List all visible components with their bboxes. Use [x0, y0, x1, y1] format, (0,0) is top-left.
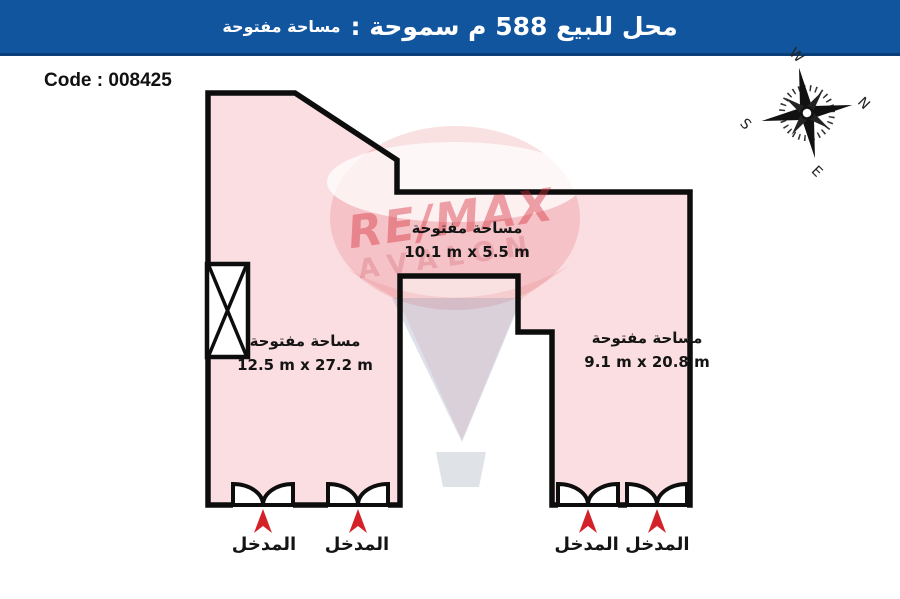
- entrance-label: المدخل: [297, 534, 417, 555]
- floor-plan-page: محل للبيع 588 م سموحة : مساحة مفتوحة Cod…: [0, 0, 900, 599]
- entrance-arrows: [254, 509, 666, 533]
- balloon-white-band: [327, 142, 583, 222]
- entrance-arrow: [254, 509, 272, 533]
- compass-letter-s: S: [736, 116, 754, 134]
- area-top-dims: 10.1 m x 5.5 m: [377, 243, 557, 261]
- compass-letter-w: W: [785, 45, 806, 66]
- compass-rose: N E S W: [724, 34, 884, 192]
- balloon-cone: [392, 298, 522, 442]
- area-left-name: مساحة مفتوحة: [215, 332, 395, 350]
- area-left-dims: 12.5 m x 27.2 m: [215, 356, 395, 374]
- balloon-basket: [436, 452, 486, 487]
- compass-letter-n: N: [854, 94, 873, 113]
- entrance-arrow: [648, 509, 666, 533]
- entrance-label: المدخل المدخل: [522, 534, 722, 555]
- compass-letter-e: E: [808, 163, 826, 181]
- area-right-dims: 9.1 m x 20.8 m: [557, 353, 737, 371]
- entrance-arrow: [579, 509, 597, 533]
- floor-plan-canvas: N E S W: [0, 0, 900, 599]
- compass-hub: [801, 107, 814, 120]
- area-top-name: مساحة مفتوحة: [377, 219, 557, 237]
- entrance-arrow: [349, 509, 367, 533]
- area-right-name: مساحة مفتوحة: [557, 329, 737, 347]
